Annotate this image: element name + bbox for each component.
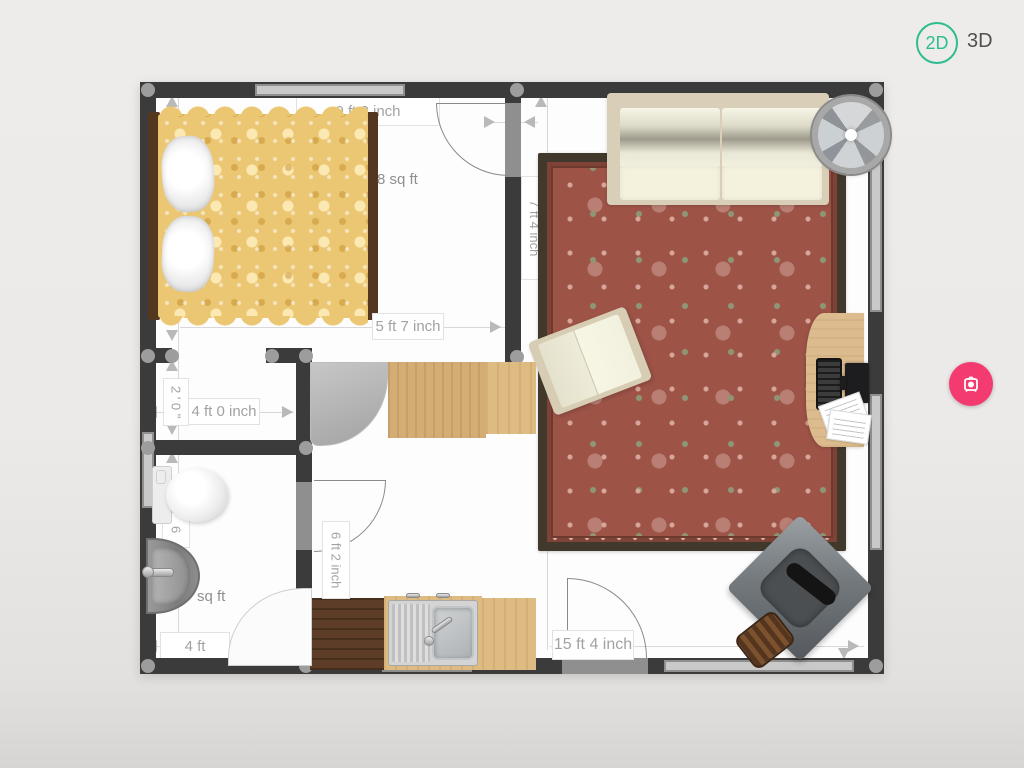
- dimension-label-bathroom-area: sq ft: [197, 588, 225, 605]
- toilet[interactable]: [166, 468, 228, 522]
- sink-drainboard: [392, 604, 430, 662]
- wall-joint[interactable]: [141, 83, 155, 97]
- kitchen-counter[interactable]: [486, 362, 536, 434]
- view-3d-button[interactable]: 3D: [967, 30, 993, 53]
- snapshot-button[interactable]: [949, 362, 993, 406]
- wall-joint[interactable]: [869, 83, 883, 97]
- bathroom-faucet-knob: [142, 566, 154, 578]
- wall-joint[interactable]: [165, 349, 179, 363]
- wall-joint[interactable]: [299, 349, 313, 363]
- window-bedroom-top[interactable]: [255, 84, 405, 96]
- view-2d-button[interactable]: 2D: [916, 22, 958, 64]
- dimension-label-closet-depth: 2 ' 0 ": [163, 378, 189, 426]
- floorplan-canvas[interactable]: 9 ft 2 inch 8 sq ft 5 ft 7 inch 2 ' 0 " …: [0, 0, 1024, 768]
- sofa-seat-cushion: [620, 166, 720, 200]
- dimension-arrow: [524, 116, 535, 128]
- wall-joint[interactable]: [141, 659, 155, 673]
- sofa-back-cushion: [620, 108, 720, 168]
- wall-joint[interactable]: [869, 659, 883, 673]
- kitchen-counter[interactable]: [482, 598, 536, 670]
- cabinet-handle: [406, 593, 420, 598]
- dimension-arrow: [282, 406, 293, 418]
- monitor-arm: [840, 376, 846, 390]
- dimension-label-bedroom-area: 8 sq ft: [377, 171, 418, 188]
- dimension-arrow: [490, 321, 501, 333]
- camera-icon: [961, 374, 981, 394]
- bed-blanket-scallop: [158, 106, 368, 116]
- sofa-seat-cushion: [722, 166, 822, 200]
- papers[interactable]: [826, 409, 872, 445]
- toilet-flush-button: [156, 470, 166, 484]
- dimension-label-closet-width: 4 ft 0 inch: [188, 398, 260, 425]
- window-living-right-2[interactable]: [870, 394, 882, 550]
- door-opening-kitchen[interactable]: [296, 482, 312, 550]
- wall-joint[interactable]: [141, 441, 155, 455]
- kitchen-cabinet-dark[interactable]: [310, 598, 384, 670]
- door-opening-entry[interactable]: [562, 658, 648, 674]
- sink-basin: [432, 606, 474, 660]
- dimension-label-bedroom-bottom: 5 ft 7 inch: [372, 313, 444, 340]
- wall-joint[interactable]: [265, 349, 279, 363]
- kitchen-counter[interactable]: [388, 362, 486, 438]
- bed-pillow[interactable]: [160, 215, 216, 294]
- window-living-right-1[interactable]: [870, 160, 882, 312]
- wall-bathroom-top[interactable]: [140, 440, 312, 455]
- wall-joint[interactable]: [141, 349, 155, 363]
- ceiling-fan[interactable]: [812, 96, 890, 174]
- dimension-label-bathroom-width: 4 ft: [160, 632, 230, 660]
- cabinet-handle: [436, 593, 450, 598]
- dimension-label-living-width: 15 ft 4 inch: [552, 630, 634, 660]
- bed-blanket-scallop: [158, 316, 368, 326]
- dimension-line: [180, 327, 506, 328]
- dimension-label-kitchen-door: 6 ft 2 inch: [322, 521, 350, 599]
- sofa-back-cushion: [722, 108, 822, 168]
- sink-faucet: [424, 636, 434, 646]
- dimension-arrow: [166, 330, 178, 341]
- wall-joint[interactable]: [510, 83, 524, 97]
